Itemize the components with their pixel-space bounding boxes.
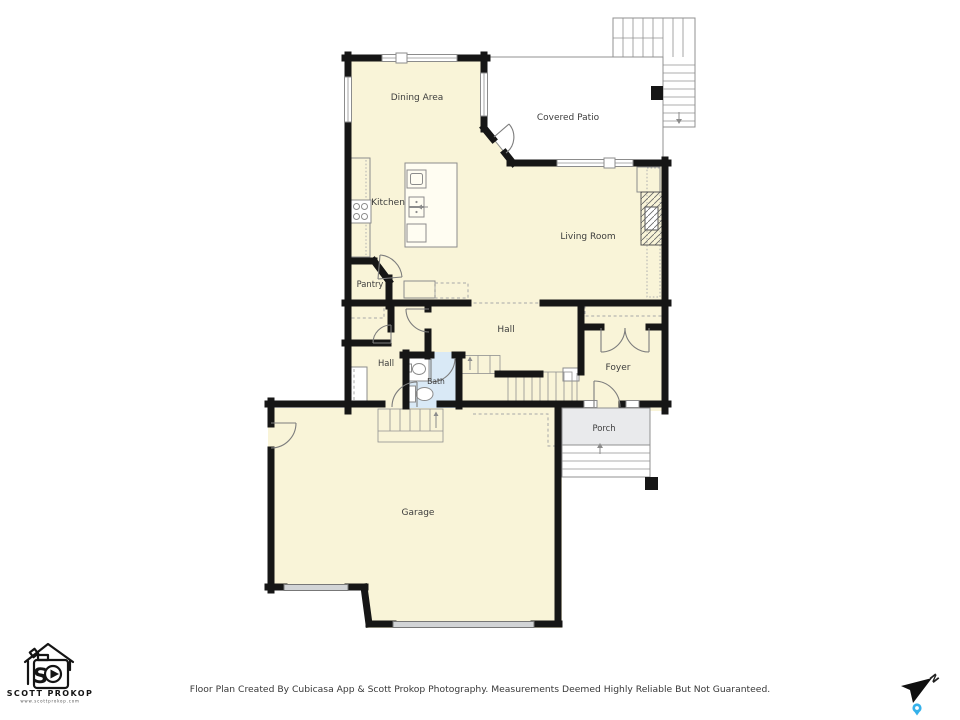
label-pantry: Pantry xyxy=(357,279,384,289)
room-garage-fill xyxy=(268,408,562,628)
fireplace xyxy=(641,192,662,245)
cooktop xyxy=(350,200,371,223)
svg-text:S: S xyxy=(33,664,48,688)
room-covered-patio-fill xyxy=(487,57,663,163)
window-dining-left xyxy=(345,77,352,122)
porch-post xyxy=(645,477,658,490)
north-label: N xyxy=(927,672,941,685)
brand-logo: S SCOTT PROKOP www.scottprokop.com xyxy=(7,644,93,704)
hall-cabinet xyxy=(349,367,367,405)
garage-door-main xyxy=(393,622,534,628)
front-door-sidelight-left xyxy=(584,401,597,408)
floor-plan-canvas: Dining Area Covered Patio Kitchen Living… xyxy=(0,0,960,720)
window-dining-top xyxy=(382,53,457,63)
kitchen-island xyxy=(405,163,457,247)
logo-brand-text: SCOTT PROKOP xyxy=(7,689,93,698)
compass: N xyxy=(901,672,940,715)
label-kitchen: Kitchen xyxy=(371,198,405,208)
label-hall-center: Hall xyxy=(497,325,514,335)
floor-plan-page: Dining Area Covered Patio Kitchen Living… xyxy=(0,0,960,720)
window-dining-patio xyxy=(481,73,488,116)
garage-door-small xyxy=(284,585,348,591)
north-arrow-icon xyxy=(901,678,932,703)
location-pin-icon xyxy=(912,703,921,715)
logo-website-text: www.scottprokop.com xyxy=(20,699,79,704)
front-door-sidelight-right xyxy=(626,401,639,408)
house-camera-icon: S xyxy=(25,644,73,688)
label-covered-patio: Covered Patio xyxy=(537,113,600,123)
patio-deck-stairs xyxy=(613,18,695,127)
room-fills xyxy=(268,55,668,628)
label-foyer: Foyer xyxy=(606,363,631,373)
label-hall-left: Hall xyxy=(378,358,394,368)
label-bath: Bath xyxy=(427,377,445,386)
label-living-room: Living Room xyxy=(560,232,615,242)
patio-post xyxy=(651,86,663,100)
label-dining-area: Dining Area xyxy=(391,93,444,103)
window-living-patio xyxy=(557,158,633,168)
toilet-bowl xyxy=(416,388,433,401)
label-porch: Porch xyxy=(592,423,615,433)
toilet-tank xyxy=(409,386,416,402)
label-garage: Garage xyxy=(402,508,435,518)
footer-disclaimer: Floor Plan Created By Cubicasa App & Sco… xyxy=(190,684,770,695)
